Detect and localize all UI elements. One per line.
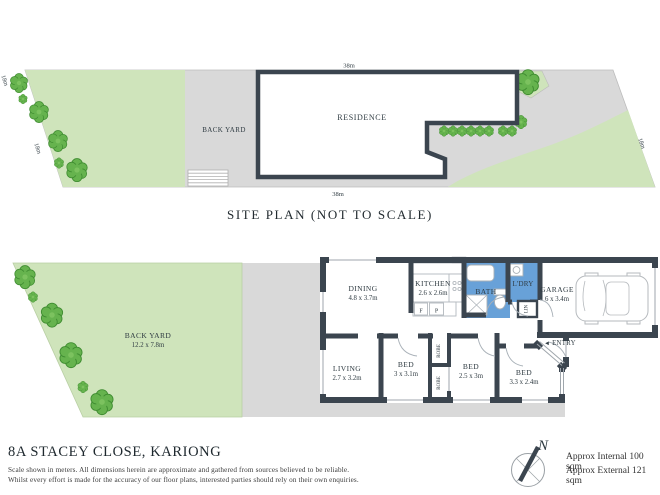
kitchen-dims: 2.6 x 2.6m — [418, 290, 448, 297]
compass-north-label: N — [537, 438, 549, 454]
backyard-lawn — [13, 263, 242, 417]
backyard-dims: 12.2 x 7.8m — [132, 342, 165, 349]
bed3-label: BED — [516, 368, 532, 377]
residence-label: RESIDENCE — [337, 113, 386, 122]
living-label: LIVING — [333, 364, 361, 373]
bed2-label: BED — [463, 362, 479, 371]
dim-top: 38m — [343, 63, 355, 70]
bed1-dims: 3 x 3.1m — [394, 371, 419, 378]
kitchen-label: KITCHEN — [415, 279, 451, 288]
bathtub-icon — [467, 265, 494, 281]
site-plan: RESIDENCE BACK YARD 38m 38m 18m 18m 18m — [0, 60, 660, 207]
robe-bottom-label: ROBE — [436, 376, 442, 390]
approx-external-area: Approx External 121 sqm — [566, 466, 660, 486]
robe-top-label: ROBE — [436, 344, 442, 358]
bed1-label: BED — [398, 360, 414, 369]
rear-paving — [320, 403, 565, 417]
linen-label: LIN — [525, 304, 530, 313]
bed2-dims: 2.5 x 3m — [459, 373, 484, 380]
site-backyard-label: BACK YARD — [202, 126, 246, 134]
backyard-label: BACK YARD — [125, 331, 172, 340]
dim-left: 18m — [32, 142, 42, 155]
dim-left-corner: 18m — [0, 74, 10, 87]
site-plan-title: SITE PLAN (NOT TO SCALE) — [0, 207, 660, 223]
hedge-icons — [439, 126, 516, 137]
garage-label: GARAGE — [540, 285, 574, 294]
entry-label: ENTRY — [552, 340, 576, 347]
compass-icon: N — [505, 434, 557, 492]
floorplan-page: RESIDENCE BACK YARD 38m 38m 18m 18m 18m … — [0, 0, 660, 495]
bath-label: BATH — [475, 287, 496, 296]
property-address: 8A STACEY CLOSE, KARIONG — [8, 444, 221, 461]
bed3-dims: 3.3 x 2.4m — [509, 379, 539, 386]
laundry-label: L'DRY — [513, 280, 534, 288]
side-paving — [242, 263, 322, 417]
entry-arrow-icon: ◄ — [544, 341, 550, 347]
dining-label: DINING — [348, 284, 377, 293]
disclaimer-line-2: Whilst every effort is made for the accu… — [8, 476, 359, 484]
garage-dims: 6 x 3.4m — [545, 296, 570, 303]
dim-bottom: 38m — [332, 191, 344, 198]
disclaimer-line-1: Scale shown in meters. All dimensions he… — [8, 466, 349, 474]
dining-dims: 4.8 x 3.7m — [348, 295, 378, 302]
stairs-icon — [188, 170, 228, 186]
car-icon — [576, 273, 648, 324]
site-backyard-lawn — [25, 70, 185, 187]
floor-plan: BACK YARD 12.2 x 7.8m — [0, 245, 660, 425]
living-dims: 2.7 x 3.2m — [332, 375, 362, 382]
